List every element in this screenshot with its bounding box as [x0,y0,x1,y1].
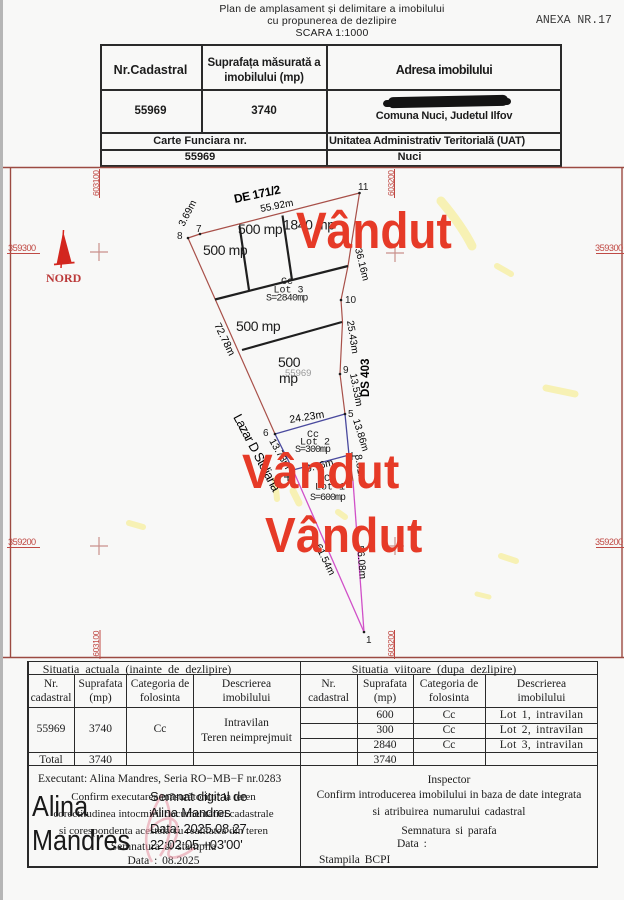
svg-text:6: 6 [263,428,269,439]
svg-text:Vândut: Vândut [265,509,423,564]
svg-text:359200: 359200 [595,537,623,547]
svg-text:500 mp: 500 mp [203,242,248,258]
svg-text:25.43m: 25.43m [344,320,360,355]
svg-text:55969: 55969 [285,368,311,379]
svg-text:10: 10 [345,295,357,306]
svg-text:Vândut: Vândut [296,203,452,260]
svg-text:359300: 359300 [8,243,36,253]
svg-text:7: 7 [196,224,202,235]
svg-text:55.92m: 55.92m [259,198,294,215]
svg-text:11: 11 [358,182,369,193]
svg-text:500 mp: 500 mp [238,221,283,237]
svg-text:24.23m: 24.23m [289,409,326,426]
svg-text:DS 403: DS 403 [360,359,372,397]
svg-text:S=2840mp: S=2840mp [266,294,308,305]
svg-text:603100: 603100 [91,170,101,196]
svg-text:NORD: NORD [46,271,82,285]
svg-text:500 mp: 500 mp [236,318,281,334]
svg-text:603200: 603200 [386,170,396,196]
svg-text:5: 5 [348,409,354,420]
svg-text:1: 1 [366,635,372,646]
svg-text:603100: 603100 [91,630,101,656]
svg-text:359200: 359200 [8,537,36,547]
svg-text:8: 8 [177,231,183,242]
svg-text:603200: 603200 [386,630,396,656]
svg-text:359300: 359300 [595,243,623,253]
svg-text:Vândut: Vândut [242,444,400,498]
